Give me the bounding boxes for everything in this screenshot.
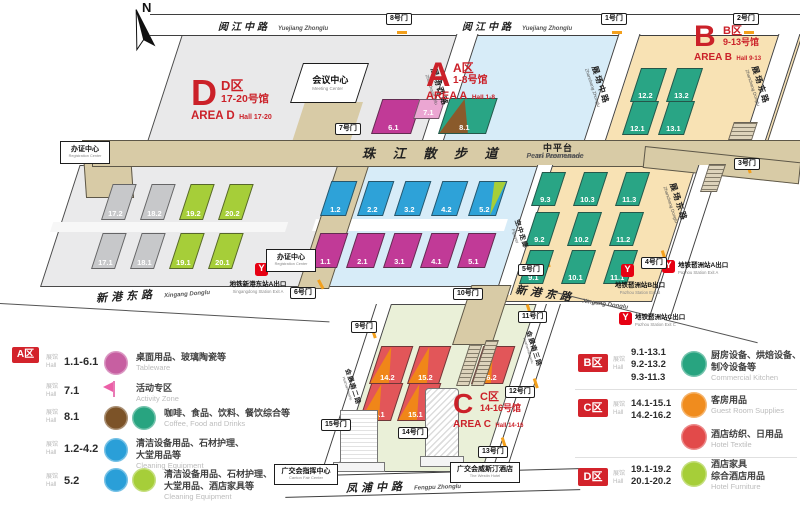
legend-zh: 客房用品 (711, 394, 800, 406)
area-halls-zh: 17-20号馆 (221, 94, 269, 105)
legend-en: Cleaning Equipment (164, 492, 344, 503)
hall-zh: 展馆 (46, 442, 58, 448)
metro-label-zh: 地铁琶洲站B出口 (615, 282, 665, 289)
furniture-icon (132, 468, 156, 492)
area-halls-zh: 1-8号馆 (453, 76, 487, 86)
hall-range: 9.3-11.3 (631, 372, 666, 384)
area-halls-en: Hall 14-16 (495, 423, 523, 429)
area-d-inner-lane (50, 222, 288, 232)
hall-zh: 展馆 (46, 355, 58, 361)
map-gate-6: 6号门 (290, 287, 316, 299)
hall-zh: 展馆 (613, 357, 625, 363)
facility-en: The Westin Hotel (451, 474, 519, 479)
hall-label: 15.1 (408, 409, 423, 420)
legend-left-row-3-text: 咖啡、食品、饮料、餐饮综合等Coffee, Food and Drinks (164, 407, 344, 430)
legend-zh: 桌面用品、玻璃陶瓷等 (136, 351, 316, 363)
hall-en: Hall (46, 363, 56, 369)
legend-hall-range: 1.1-6.1 (64, 355, 98, 369)
gate-tick (744, 31, 754, 34)
legend-hall-range: 5.2 (64, 474, 79, 488)
facility-zh: 会议中心 (298, 75, 362, 85)
facility-en: Meeting Center (296, 86, 360, 91)
metro-label-zh: 地铁新港东站A出口 (230, 281, 287, 288)
hall-label: 3.1 (394, 256, 404, 267)
legend-hall-range: 1.2-4.2 (64, 442, 98, 456)
area-letter: C (453, 390, 473, 418)
hall-label: 12.2 (638, 90, 653, 101)
hall-label: 20.1 (215, 257, 230, 268)
coffee-icon (104, 406, 128, 430)
facility-en: Registration Center (267, 262, 315, 266)
hall-label: 17.1 (98, 257, 113, 268)
legend-zh: 酒店家具 综合酒店用品 (711, 458, 800, 482)
hall-label: 5.2 (479, 204, 489, 215)
hall-en: Hall (613, 410, 623, 416)
road-label-yuejiang-left: 阅江中路Yuejiang Zhonglu (218, 17, 328, 35)
area-zh: A区 (453, 62, 474, 74)
metro-label-en: Pazhou Station Exit C (635, 322, 685, 327)
map-gate-7: 7号门 (335, 123, 361, 135)
hall-en: Hall (613, 365, 623, 371)
legend-hall-label: 展馆Hall (613, 402, 625, 417)
road-label-en: Yuejiang Zhonglu (522, 26, 572, 32)
hall-label: 4.2 (441, 204, 451, 215)
legend-right-C区-row-1: 客房用品Guest Room Supplies (711, 394, 800, 417)
road-label-en: Xingang Donglu (164, 290, 210, 299)
area-en: AREA B (694, 52, 732, 63)
guestroom-icon (681, 392, 707, 418)
metro-label-en: Pazhou Station Exit B (592, 290, 688, 295)
hall-range: 19.1-19.2 (631, 464, 671, 476)
map-gate-14: 14号门 (398, 427, 428, 439)
clean-icon (104, 468, 128, 492)
hall-label: 11.2 (616, 234, 630, 245)
tableware-icon (104, 351, 128, 375)
road-label-zh: 新港东路 (96, 289, 157, 305)
area-en: AREA C (453, 419, 491, 430)
hall-label: 19.2 (186, 208, 201, 219)
legend-hall-range: 8.1 (64, 410, 79, 424)
area-en: AREA A (426, 90, 467, 102)
hall-label: 11.3 (622, 194, 636, 205)
hall-label: 1.1 (320, 256, 330, 267)
meeting-center-box: 会议中心Meeting Center (290, 63, 369, 103)
map-gate-4: 4号门 (641, 257, 667, 269)
legend-en: Guest Room Supplies (711, 406, 800, 417)
legend-zh: 厨房设备、烘焙设备、 制冷设备等 (711, 349, 800, 373)
area-halls-en: Hall 17-20 (239, 114, 272, 121)
area-zh: D区 (221, 79, 243, 92)
legend-hall-range: 7.1 (64, 384, 79, 398)
legend-hall-ranges: 9.1-13.19.2-13.29.3-11.3 (631, 347, 666, 384)
hall-label: 10.2 (574, 234, 589, 245)
legend-right-D区-row-1: 酒店家具 综合酒店用品Hotel Furniture (711, 458, 800, 493)
hall-zh: 展馆 (46, 410, 58, 416)
metro-label-en: Pazhou Station Exit A (678, 270, 728, 275)
metro-label-zh: 地铁琶洲站C出口 (635, 314, 685, 321)
area-en: AREA D (191, 110, 235, 122)
map-gate-10: 10号门 (453, 288, 483, 300)
hall-en: Hall (46, 482, 56, 488)
hall-zh: 展馆 (46, 474, 58, 480)
legend-badge-B区: B区 (578, 354, 608, 372)
kitchen-icon (132, 406, 156, 430)
legend-badge-a: A区 (12, 347, 39, 363)
hall-zh: 展馆 (613, 402, 625, 408)
area-zh: C区 (480, 392, 499, 403)
hall-label: 4.1 (431, 256, 441, 267)
hall-label: 2.1 (357, 256, 367, 267)
hall-label: 13.2 (674, 90, 689, 101)
hall-en: Hall (46, 418, 56, 424)
pazhou-c-label: 地铁琶洲站C出口Pazhou Station Exit C (635, 314, 685, 327)
road-label-zh: 凤浦中路 (346, 481, 406, 495)
legend-badge-C区: C区 (578, 399, 608, 417)
hall-label: 10.3 (580, 194, 595, 205)
hall-label: 5.1 (468, 256, 478, 267)
legend-left-row-1-text: 桌面用品、玻璃陶瓷等Tableware (136, 351, 316, 374)
road-label-zh: 珠 江 散 步 道 (362, 146, 504, 161)
hall-label: 6.1 (388, 122, 398, 133)
gate-tick (612, 31, 622, 34)
road-label-zh: 阅江中路 (462, 22, 514, 33)
hall-label: 9.2 (534, 234, 544, 245)
hall-label: 12.1 (630, 123, 645, 134)
hall-zh: 展馆 (46, 384, 58, 390)
area-halls-zh: 14-16号馆 (480, 404, 521, 413)
flag (104, 380, 120, 398)
road-label-yuejiang-right: 阅江中路Yuejiang Zhonglu (462, 17, 572, 35)
road-label-en: Yuejiang Zhonglu (278, 26, 328, 32)
legend-zh: 清洁设备用品、石材护理、 大堂用品、酒店家具等 (164, 468, 344, 492)
legend-left-row-5-text: 清洁设备用品、石材护理、 大堂用品、酒店家具等Cleaning Equipmen… (164, 468, 344, 503)
legend-en: Coffee, Food and Drinks (164, 419, 344, 430)
hall-label: 18.2 (147, 208, 162, 219)
registration-west-box: 办证中心Registration Center (60, 141, 110, 164)
legend-zh: 咖啡、食品、饮料、餐饮综合等 (164, 407, 344, 419)
area-halls-zh: 9-13号馆 (723, 38, 759, 47)
map-gate-1: 1号门 (601, 13, 627, 25)
road-label-middle-platform: 中平台The Middle Platform (528, 141, 588, 160)
xingang-boundary-left (0, 303, 329, 322)
map-gate-9: 9号门 (351, 321, 377, 333)
legend-hall-label: 展馆Hall (46, 355, 58, 370)
legend-hall-ranges: 14.1-15.114.2-16.2 (631, 398, 671, 423)
area-halls-en: Hall 9-13 (736, 56, 761, 62)
exhibition-map: N 17.218.219.220. (0, 0, 800, 514)
hall-en: Hall (613, 479, 623, 485)
hall-en: Hall (46, 450, 56, 456)
hall-label: 1.2 (330, 204, 340, 215)
legend-en: Commercial Kitchen (711, 373, 800, 384)
map-gate-8: 8号门 (386, 13, 412, 25)
road-label-zh: 中平台 (528, 141, 588, 154)
pazhou-a-label: 地铁琶洲站A出口Pazhou Station Exit A (678, 262, 728, 275)
legend-zh: 清洁设备用品、石材护理、 大堂用品等 (136, 437, 316, 461)
compass-arrow-icon (121, 3, 161, 55)
hall-label: 15.2 (418, 372, 433, 383)
hall-label: 9.3 (540, 194, 550, 205)
legend-hall-label: 展馆Hall (613, 357, 625, 372)
legend-hall-label: 展馆Hall (46, 442, 58, 457)
area-letter: D (191, 75, 217, 111)
legend-en: Activity Zone (136, 394, 316, 405)
road-label-en: Xingang Donglu (582, 299, 628, 311)
legend-zh: 活动专区 (136, 382, 316, 394)
kitchen-icon (681, 351, 707, 377)
pazhou-b-label: 地铁琶洲站B出口Pazhou Station Exit B (592, 282, 688, 295)
legend-hall-label: 展馆Hall (613, 471, 625, 486)
westin-hotel-box: 广交会威斯汀酒店The Westin Hotel (450, 462, 520, 483)
hall-label: 2.2 (367, 204, 377, 215)
furniture-icon (681, 461, 707, 487)
metro-label-zh: 地铁琶洲站A出口 (678, 262, 728, 269)
hall-range: 14.2-16.2 (631, 410, 671, 422)
hall-label: 20.2 (225, 208, 240, 219)
facility-en: Registration Center (61, 154, 109, 158)
map-gate-5: 5号门 (518, 264, 544, 276)
pazhou-c-metro-icon: Y (619, 312, 632, 325)
hall-label: 3.2 (404, 204, 414, 215)
hall-range: 9.2-13.2 (631, 359, 666, 371)
hall-label: 19.1 (176, 257, 191, 268)
legend-hall-label: 展馆Hall (46, 410, 58, 425)
hall-label: 18.1 (137, 257, 152, 268)
legend-en: Tableware (136, 363, 316, 374)
registration-mid-box: 办证中心Registration Center (266, 249, 316, 272)
clean-icon (104, 438, 128, 462)
map-gate-2: 2号门 (733, 13, 759, 25)
pazhou-b-metro-icon: Y (621, 264, 634, 277)
hall-label: 10.1 (568, 272, 583, 283)
map-gate-12: 12号门 (505, 386, 535, 398)
hall-label: 8.1 (459, 122, 469, 133)
hall-label: 17.2 (108, 208, 123, 219)
hall-en: Hall (46, 392, 56, 398)
legend-badge-D区: D区 (578, 468, 608, 486)
hall-zh: 展馆 (613, 471, 625, 477)
map-gate-11: 11号门 (518, 311, 547, 323)
legend-en: Hotel Furniture (711, 482, 800, 493)
facility-zh: 办证中心 (61, 146, 109, 154)
area-halls-en: Hall 1-8 (472, 94, 495, 101)
road-label-en: The Middle Platform (528, 154, 588, 160)
legend-zh: 酒店纺织、日用品 (711, 428, 800, 440)
hall-label: 7.1 (423, 107, 433, 118)
legend-hall-label: 展馆Hall (46, 384, 58, 399)
hall-label: 14.2 (380, 372, 395, 383)
legend-left-row-4-text: 清洁设备用品、石材护理、 大堂用品等Cleaning Equipment (136, 437, 316, 472)
road-label-en: Fengpu Zhonglu (414, 484, 461, 492)
road-label-zh: 阅江中路 (218, 22, 270, 33)
hall-range: 20.1-20.2 (631, 476, 671, 488)
hall-range: 9.1-13.1 (631, 347, 666, 359)
textile-icon (681, 424, 707, 450)
facility-zh: 办证中心 (267, 254, 315, 262)
area-zh: B区 (723, 26, 742, 37)
legend-hall-label: 展馆Hall (46, 474, 58, 489)
legend-left-row-2-text: 活动专区Activity Zone (136, 382, 316, 405)
legend-right-C区-row-2: 酒店纺织、日用品Hotel Textile (711, 428, 800, 451)
gate-tick (397, 31, 407, 34)
legend-hall-ranges: 19.1-19.220.1-20.2 (631, 464, 671, 489)
legend-divider-1 (575, 389, 797, 390)
hall-range: 14.1-15.1 (631, 398, 671, 410)
map-gate-13: 13号门 (478, 446, 508, 458)
map-gate-3: 3号门 (734, 158, 760, 170)
legend-en: Hotel Textile (711, 440, 800, 451)
legend-right-B区-row-1: 厨房设备、烘焙设备、 制冷设备等Commercial Kitchen (711, 349, 800, 384)
hall-label: 13.1 (666, 123, 681, 134)
